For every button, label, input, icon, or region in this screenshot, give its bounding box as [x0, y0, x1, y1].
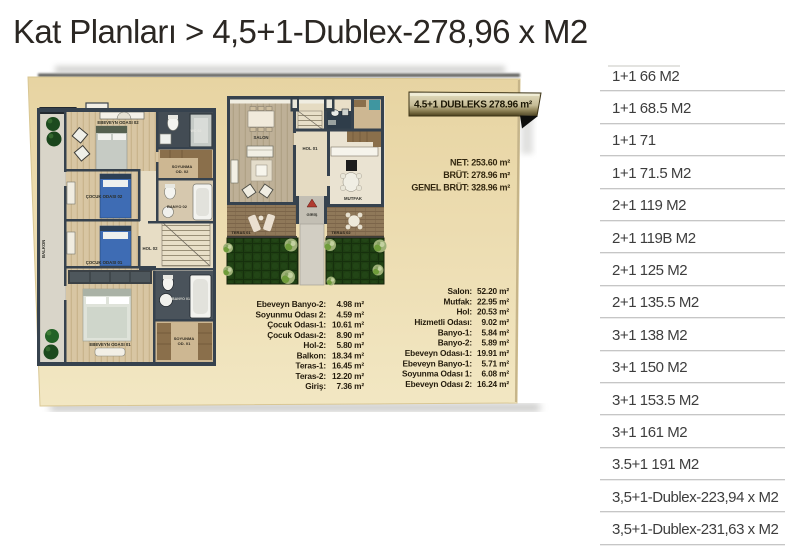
svg-text:6.08 m²: 6.08 m² — [481, 369, 509, 379]
svg-text:Çocuk Odası-1:: Çocuk Odası-1: — [267, 320, 326, 330]
svg-text:WC 02: WC 02 — [191, 129, 202, 133]
svg-text:MUTFAK: MUTFAK — [344, 196, 363, 201]
svg-text:NET: 253.60 m²: NET: 253.60 m² — [450, 158, 510, 168]
svg-text:4.5+1 DUBLEKS 278.96 m²: 4.5+1 DUBLEKS 278.96 m² — [414, 100, 533, 111]
svg-text:Mutfak:: Mutfak: — [444, 296, 472, 306]
svg-text:Hol:: Hol: — [456, 307, 472, 317]
svg-text:9.02 m²: 9.02 m² — [481, 317, 509, 327]
svg-text:Teras-2:: Teras-2: — [296, 371, 326, 381]
svg-text:HOL 01: HOL 01 — [303, 146, 319, 151]
svg-text:Ebeveyn Banyo-2:: Ebeveyn Banyo-2: — [256, 299, 326, 309]
svg-text:Ebeveyn Banyo-1:: Ebeveyn Banyo-1: — [402, 358, 472, 368]
svg-text:GENEL BRÜT: 328.96 m²: GENEL BRÜT: 328.96 m² — [411, 183, 510, 193]
svg-text:16.24 m²: 16.24 m² — [477, 379, 509, 389]
svg-text:Balkon:: Balkon: — [297, 350, 326, 360]
svg-text:Hizmetli Odası:: Hizmetli Odası: — [414, 317, 472, 327]
svg-text:52.20 m²: 52.20 m² — [477, 286, 509, 296]
svg-text:BANYO 01: BANYO 01 — [172, 297, 190, 301]
svg-text:Salon:: Salon: — [448, 286, 472, 296]
svg-text:22.95 m²: 22.95 m² — [477, 296, 509, 306]
svg-text:Banyo-2:: Banyo-2: — [438, 338, 472, 348]
svg-text:Teras-1:: Teras-1: — [296, 361, 326, 371]
svg-text:OD. 01: OD. 01 — [178, 341, 191, 346]
svg-text:EBEVEYN ODASI 02: EBEVEYN ODASI 02 — [97, 120, 139, 125]
svg-text:5.71 m²: 5.71 m² — [481, 358, 509, 368]
svg-text:16.45 m²: 16.45 m² — [332, 361, 364, 371]
svg-text:4.98 m²: 4.98 m² — [336, 299, 364, 309]
svg-text:OD. 02: OD. 02 — [176, 169, 189, 174]
svg-text:Ebeveyn Odası 2:: Ebeveyn Odası 2: — [405, 379, 472, 389]
svg-text:TERAS 01: TERAS 01 — [231, 230, 251, 235]
svg-text:4.59 m²: 4.59 m² — [336, 309, 364, 319]
svg-text:Soyunmu Odası 2:: Soyunmu Odası 2: — [256, 309, 326, 319]
svg-text:18.34 m²: 18.34 m² — [332, 350, 364, 360]
svg-text:Ebeveyn Odası-1:: Ebeveyn Odası-1: — [405, 348, 472, 358]
svg-text:12.20 m²: 12.20 m² — [332, 371, 364, 381]
svg-text:Soyunma Odası 1:: Soyunma Odası 1: — [402, 369, 472, 379]
svg-text:GİRİŞ: GİRİŞ — [307, 212, 318, 217]
svg-text:BALKON: BALKON — [41, 240, 46, 258]
svg-text:ÇOCUK ODASI 02: ÇOCUK ODASI 02 — [86, 194, 123, 199]
svg-text:Hol-2:: Hol-2: — [303, 340, 326, 350]
svg-text:TERAS 02: TERAS 02 — [331, 230, 351, 235]
svg-text:7.36 m²: 7.36 m² — [336, 381, 364, 391]
svg-text:5.80 m²: 5.80 m² — [336, 340, 364, 350]
svg-text:ÇOCUK ODASI 01: ÇOCUK ODASI 01 — [86, 260, 123, 265]
svg-text:5.89 m²: 5.89 m² — [481, 338, 509, 348]
svg-text:Çocuk Odası-2:: Çocuk Odası-2: — [267, 330, 326, 340]
svg-text:BANYO 02: BANYO 02 — [167, 204, 188, 209]
svg-text:BRÜT: 278.96 m²: BRÜT: 278.96 m² — [443, 170, 510, 180]
svg-text:5.84 m²: 5.84 m² — [481, 327, 509, 337]
svg-text:HOL 02: HOL 02 — [143, 246, 159, 251]
svg-text:Banyo-1:: Banyo-1: — [438, 327, 472, 337]
svg-text:20.53 m²: 20.53 m² — [477, 307, 509, 317]
svg-text:8.90 m²: 8.90 m² — [336, 330, 364, 340]
svg-text:19.91 m²: 19.91 m² — [477, 348, 509, 358]
svg-text:10.61 m²: 10.61 m² — [332, 320, 364, 330]
svg-text:SALON: SALON — [253, 135, 268, 140]
svg-text:Giriş:: Giriş: — [305, 381, 326, 391]
svg-text:EBEVEYN ODASI 01: EBEVEYN ODASI 01 — [89, 342, 131, 347]
